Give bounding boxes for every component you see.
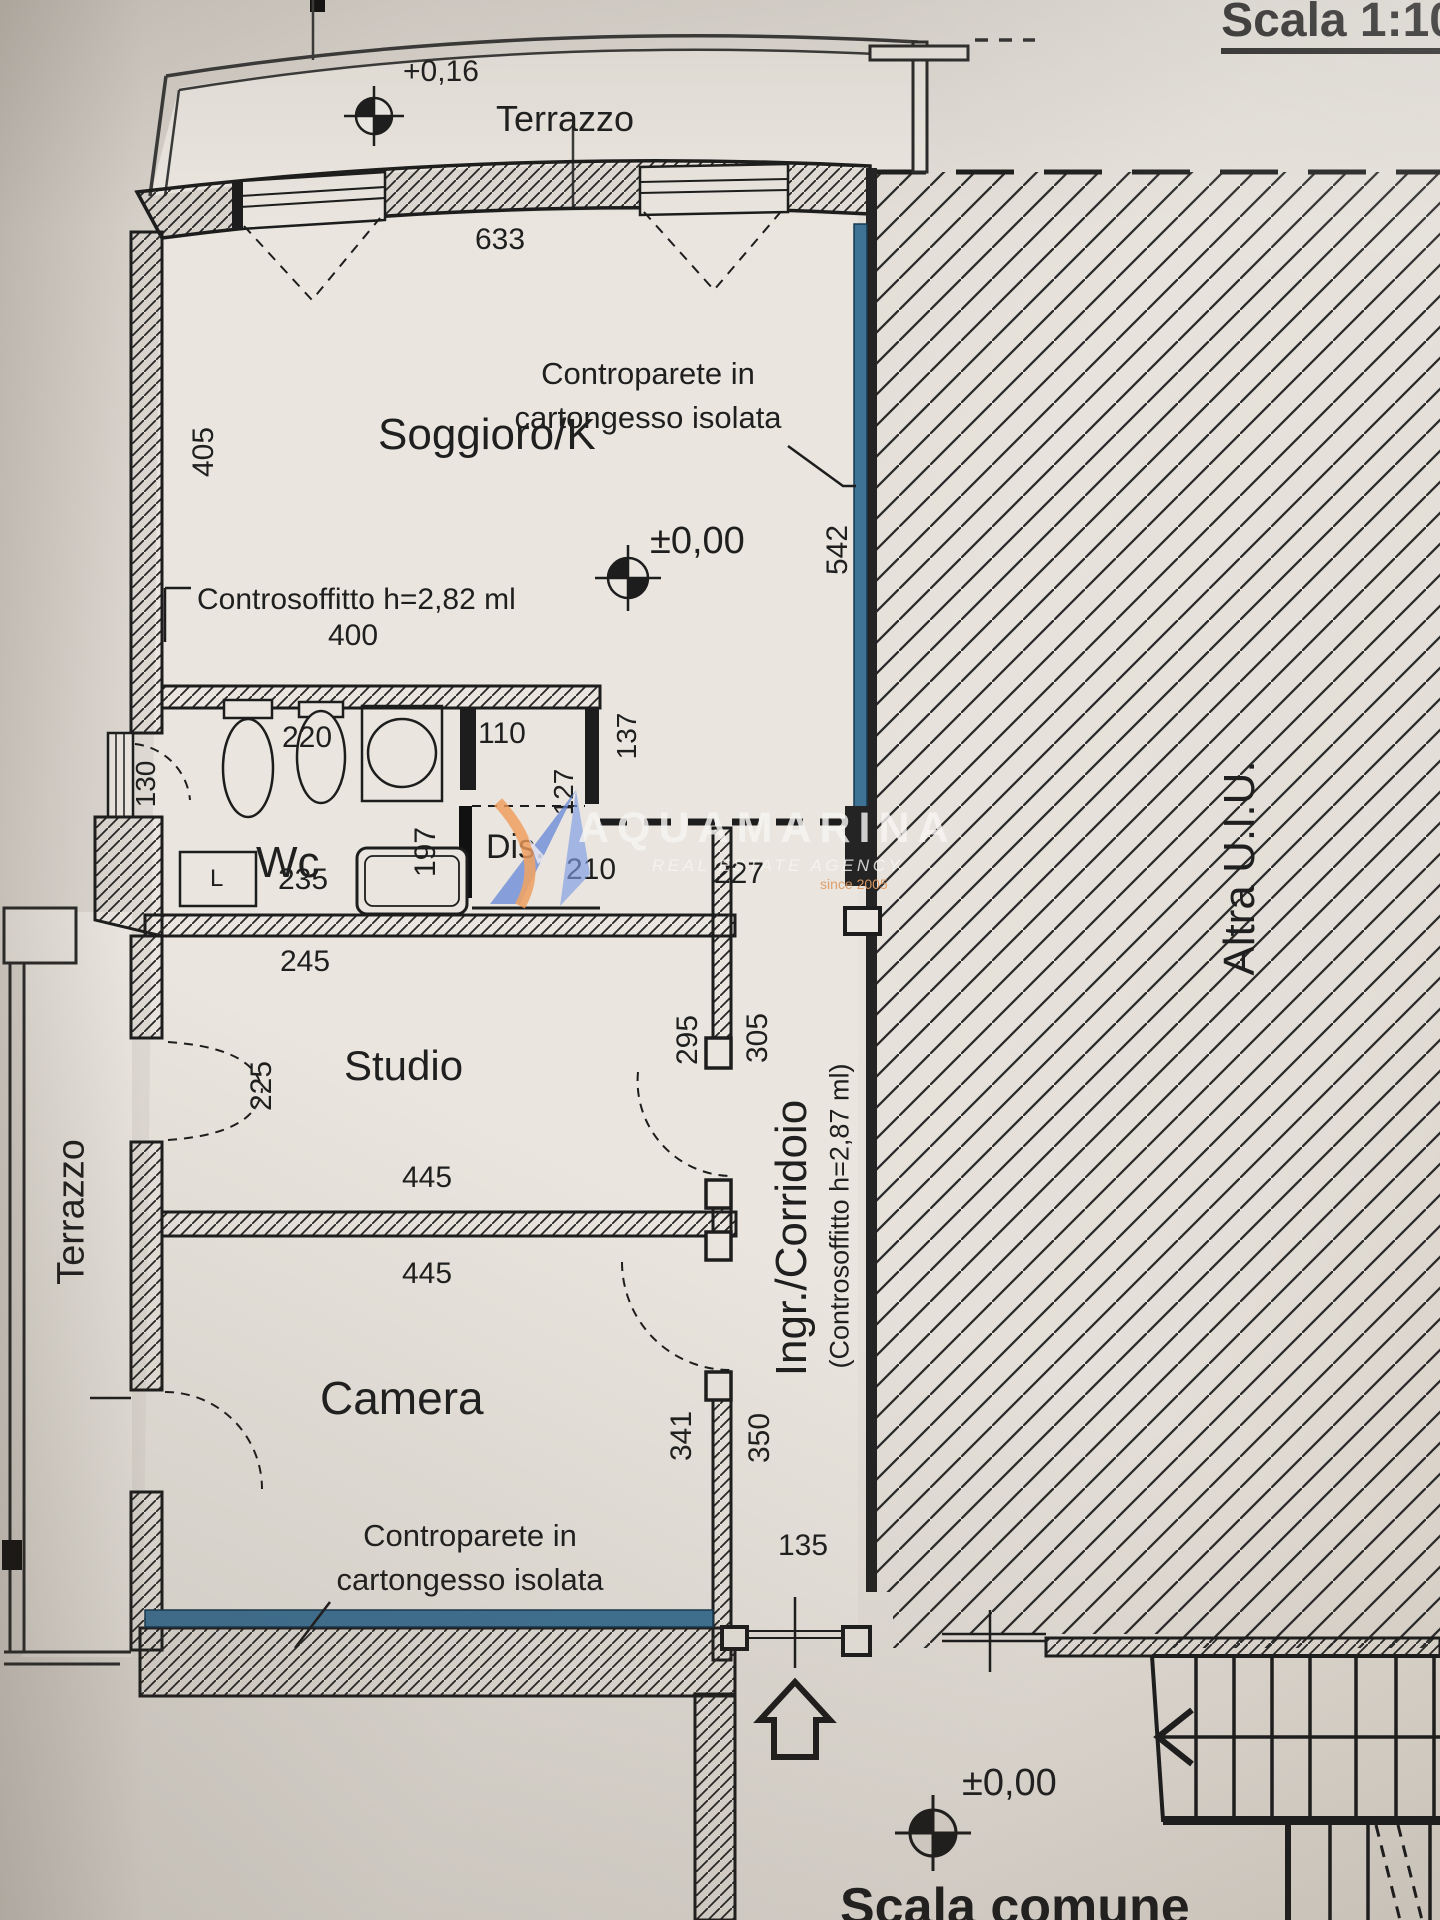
dim-341: 341: [665, 1411, 699, 1461]
watermark-brand: AQUAMARINA: [578, 804, 957, 853]
floor-plan-photo: Scala 1:10 +0,16 Terrazzo 633 Contropare…: [0, 0, 1440, 1920]
false-ceiling-note: Controsoffitto h=2,82 ml: [197, 584, 516, 616]
floor-level-value: ±0,00: [650, 522, 745, 562]
room-label-camera: Camera: [320, 1374, 484, 1422]
dim-235: 235: [278, 864, 328, 896]
dim-400: 400: [328, 620, 378, 652]
room-label-corridoio: Ingr./Corridoio: [767, 1100, 817, 1376]
dim-542: 542: [821, 525, 855, 575]
room-label-terrazzo-top: Terrazzo: [496, 100, 634, 138]
dim-350: 350: [743, 1413, 777, 1463]
stair-level-value: ±0,00: [962, 1764, 1057, 1804]
watermark-since: since 2005: [820, 876, 888, 892]
common-stair-label: Scala comune: [840, 1880, 1190, 1920]
room-label-studio: Studio: [344, 1044, 463, 1088]
dim-405: 405: [187, 427, 221, 477]
counterwall-note-bottom: Controparete in cartongesso isolata: [336, 1514, 603, 1602]
corridor-ceiling-note: (Controsoffitto h=2,87 ml): [825, 1064, 856, 1369]
dim-445-camera: 445: [402, 1258, 452, 1290]
counterwall-note-top-line1: Controparete in: [541, 356, 755, 391]
dim-633: 633: [475, 224, 525, 256]
scale-title: Scala 1:10: [1221, 0, 1440, 54]
dim-130: 130: [130, 761, 162, 808]
watermark-tagline: REAL ESTATE AGENCY: [652, 856, 903, 876]
dim-135: 135: [778, 1530, 828, 1562]
room-label-terrazzo-left: Terrazzo: [51, 1139, 94, 1285]
room-label-living: Soggioro/K: [378, 412, 596, 458]
dim-197: 197: [409, 827, 443, 877]
dim-225: 225: [245, 1061, 279, 1111]
dim-110: 110: [478, 718, 526, 750]
other-unit-label: Altra U.I.U.: [1215, 760, 1265, 975]
washing-machine-symbol: L: [210, 866, 223, 891]
level-marker-stair: [895, 1795, 971, 1871]
dim-137: 137: [611, 713, 643, 760]
dim-220: 220: [282, 722, 332, 754]
dim-445-studio: 445: [402, 1162, 452, 1194]
counterwall-note-bottom-line1: Controparete in: [363, 1518, 577, 1553]
terrace-level-value: +0,16: [403, 56, 479, 88]
dim-245: 245: [280, 946, 330, 978]
dim-305: 305: [741, 1013, 775, 1063]
counterwall-note-bottom-line2: cartongesso isolata: [336, 1562, 603, 1597]
dim-295: 295: [671, 1015, 705, 1065]
